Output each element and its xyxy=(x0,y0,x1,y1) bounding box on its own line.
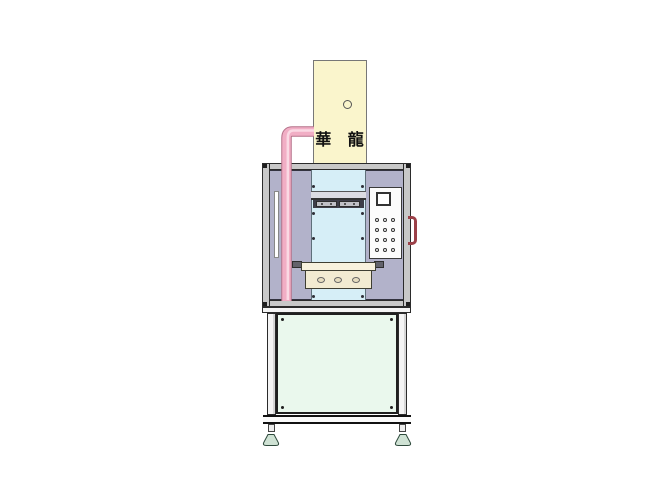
corner-screw xyxy=(406,164,410,168)
work-table-holes xyxy=(305,270,372,289)
frame-bottom-rail xyxy=(262,300,411,307)
keypad-button xyxy=(375,218,379,222)
corner-screw xyxy=(263,302,267,306)
column-hole xyxy=(343,100,352,109)
tool-block xyxy=(316,201,337,207)
keypad-button xyxy=(391,238,395,242)
side-slot xyxy=(274,191,279,258)
display-window xyxy=(376,192,391,206)
brand-label: 華 龍 xyxy=(311,129,369,151)
keypad xyxy=(375,218,397,252)
keypad-button xyxy=(391,248,395,252)
guard-panel xyxy=(276,313,398,414)
keypad-button xyxy=(375,248,379,252)
machine-render: 華 龍 xyxy=(0,0,660,480)
panel-screw xyxy=(390,318,393,321)
rivet xyxy=(312,185,315,188)
cabinet-bottom-rail xyxy=(263,415,411,424)
rivet xyxy=(312,212,315,215)
cabinet-right-post xyxy=(398,313,407,415)
keypad-button xyxy=(391,218,395,222)
keypad-button xyxy=(375,238,379,242)
keypad-button xyxy=(383,248,387,252)
control-panel xyxy=(369,187,402,259)
tool-block xyxy=(339,201,360,207)
cabinet-top-rail xyxy=(262,307,411,313)
rivet xyxy=(312,237,315,240)
leveling-foot xyxy=(393,431,413,443)
table-hole xyxy=(317,277,325,283)
rivet xyxy=(361,185,364,188)
cabinet-left-post xyxy=(267,313,276,415)
crown-beam xyxy=(311,191,366,200)
rivet xyxy=(312,295,315,298)
leveling-foot xyxy=(261,431,281,443)
frame-left-post xyxy=(262,163,270,307)
corner-screw xyxy=(406,302,410,306)
table-hole xyxy=(352,277,360,283)
rivet xyxy=(361,212,364,215)
panel-screw xyxy=(390,406,393,409)
door-handle xyxy=(408,216,417,245)
corner-screw xyxy=(263,164,267,168)
rivet xyxy=(361,237,364,240)
panel-screw xyxy=(281,406,284,409)
rivet xyxy=(361,295,364,298)
keypad-button xyxy=(383,218,387,222)
keypad-button xyxy=(391,228,395,232)
keypad-button xyxy=(375,228,379,232)
keypad-button xyxy=(383,238,387,242)
panel-screw xyxy=(281,318,284,321)
table-hole xyxy=(334,277,342,283)
frame-top-rail xyxy=(262,163,411,170)
keypad-button xyxy=(383,228,387,232)
